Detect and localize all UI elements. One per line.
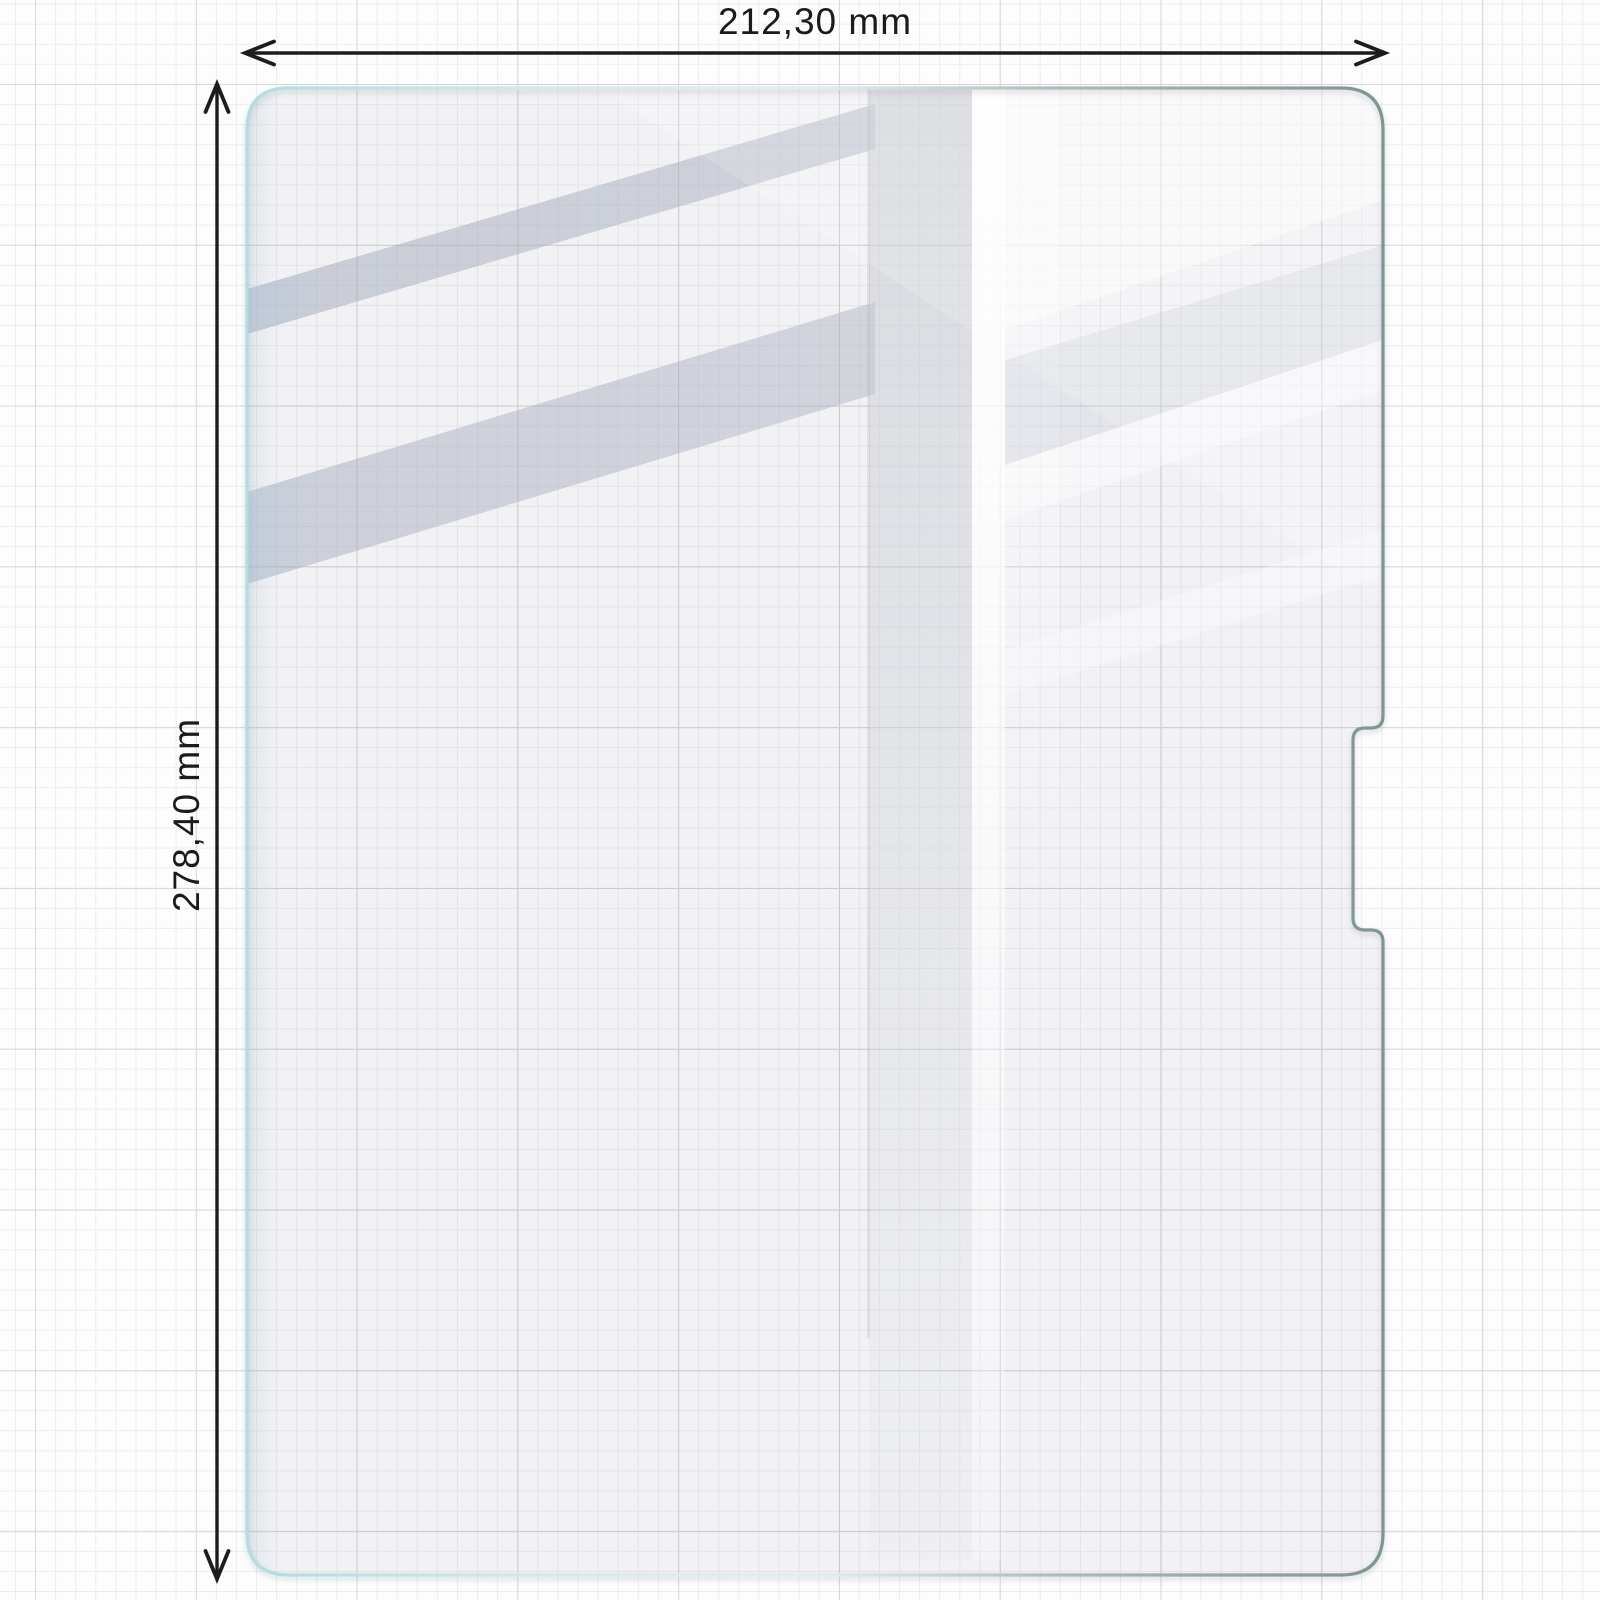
width-dimension-label: 212,30 mm <box>718 1 912 43</box>
reflection-stripe-lower <box>247 302 875 584</box>
height-dimension-line <box>206 84 229 1579</box>
diagram-overlay <box>0 0 1600 1600</box>
dimension-diagram: 212,30 mm 278,40 mm <box>0 0 1600 1600</box>
glass-reflections <box>247 88 1383 1575</box>
reflection-left-tint <box>247 88 280 1575</box>
width-dimension-line <box>245 42 1385 65</box>
reflection-band-edge <box>867 88 870 1338</box>
height-dimension-label: 278,40 mm <box>166 718 208 912</box>
